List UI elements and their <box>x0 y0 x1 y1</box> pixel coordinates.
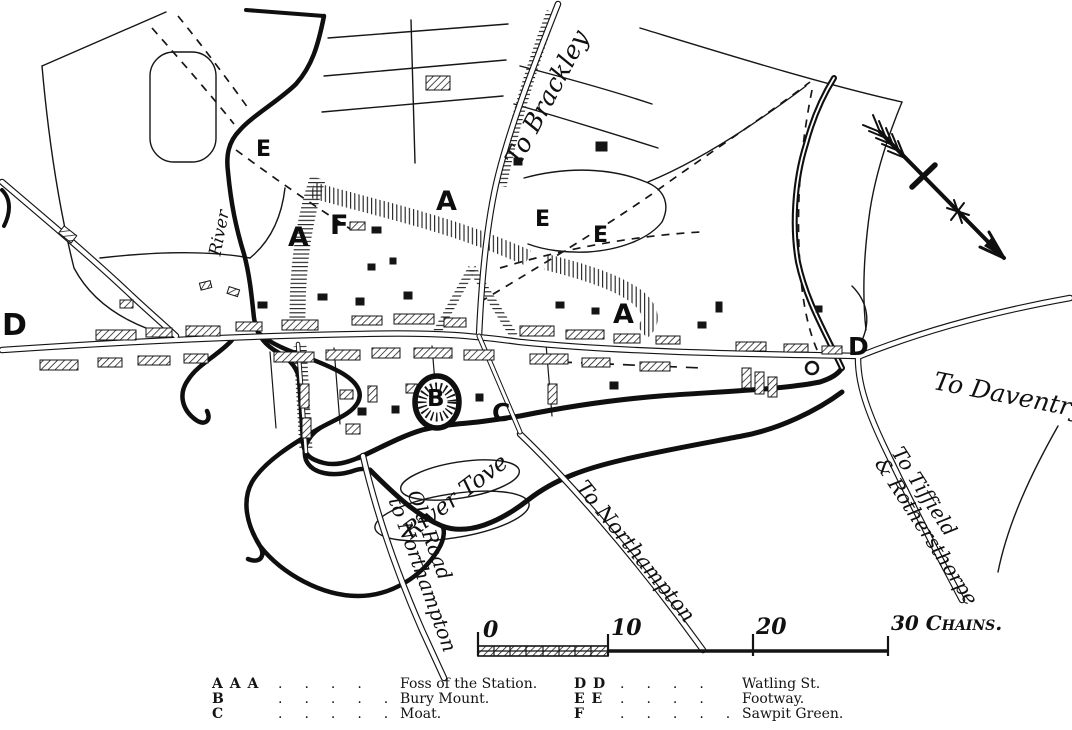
legend-key: D D <box>574 676 620 692</box>
legend-key: E E <box>574 691 620 707</box>
roads <box>2 4 1070 678</box>
legend-val: Watling St. <box>742 676 904 692</box>
legend-val: Moat. <box>400 706 542 722</box>
pond-outlines <box>372 453 533 550</box>
legend-key: C <box>212 706 278 722</box>
legend-row-EE: E E....Footway. <box>574 691 904 706</box>
legend-dots: ..... <box>278 706 400 721</box>
compass-north-arrow <box>863 115 1004 258</box>
legend-val: Footway. <box>742 691 904 707</box>
legend-row-C: C.....Moat. <box>212 706 542 721</box>
legend-dots: .... <box>278 676 400 691</box>
legend-row-F: F.....Sawpit Green. <box>574 706 904 721</box>
legend-dots: .... <box>620 676 742 691</box>
legend-key: B <box>212 691 278 707</box>
map-page: RiverTo BrackleyTo DaventryRiver ToveTo … <box>0 0 1072 730</box>
legend-row-DD: D D....Watling St. <box>574 676 904 691</box>
legend-key: A A A <box>212 676 278 692</box>
legend-val: Foss of the Station. <box>400 676 542 692</box>
legend-row-B: B.....Bury Mount. <box>212 691 542 706</box>
legend-val: Bury Mount. <box>400 691 542 707</box>
town-plan-drawing <box>0 0 1072 730</box>
legend-val: Sawpit Green. <box>742 706 904 722</box>
stream-crossing-ring <box>806 362 818 374</box>
legend-dots: .... <box>620 691 742 706</box>
legend-row-AAA: A A A....Foss of the Station. <box>212 676 542 691</box>
scale-bar <box>478 632 888 656</box>
legend-dots: ..... <box>278 691 400 706</box>
bury-mount <box>415 376 459 428</box>
legend-key: F <box>574 706 620 722</box>
legend-right-column: D D....Watling St.E E....Footway.F.....S… <box>574 676 904 721</box>
legend-left-column: A A A....Foss of the Station.B.....Bury … <box>212 676 542 721</box>
legend-dots: ..... <box>620 706 742 721</box>
